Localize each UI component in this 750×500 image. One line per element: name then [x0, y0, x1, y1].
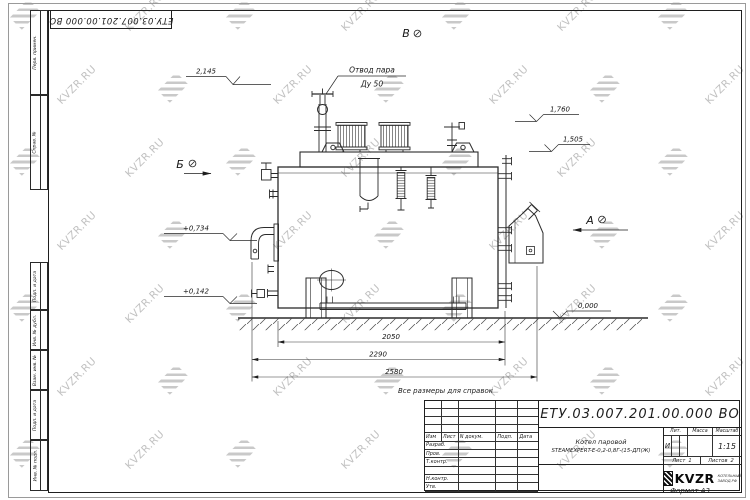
- smoke-bracket: [509, 202, 543, 263]
- view-a-label: А: [585, 214, 594, 227]
- elevation-marks: [164, 77, 611, 319]
- supports-and-drain: [306, 269, 472, 319]
- elevation-0142-text: +0,142: [183, 288, 209, 296]
- dim-2580-text: 2580: [385, 368, 403, 376]
- callout-line1: Отвод пара: [349, 66, 395, 75]
- safety-valves: [336, 123, 410, 153]
- callout-line2: Ду 50: [360, 80, 383, 89]
- left-fittings: [251, 163, 279, 298]
- view-b-label: Б: [176, 158, 184, 171]
- dim-2050-text: 2050: [382, 333, 400, 341]
- view-v-label: В: [402, 27, 410, 40]
- elevation-2145-text: 2,145: [196, 68, 217, 76]
- dim-2290-text: 2290: [369, 351, 387, 359]
- drawing-sheet: KVZR.RUKVZR.RUKVZR.RUKVZR.RUKVZR.RUKVZR.…: [0, 0, 750, 500]
- elevation-1760-text: 1,760: [550, 106, 571, 114]
- boiler-body: [278, 143, 498, 308]
- elevation-1505-text: 1,505: [563, 136, 584, 144]
- ground-line: [238, 318, 648, 330]
- steam-outlet-pipe: [312, 89, 333, 153]
- elevation-0000-text: 0,000: [578, 302, 599, 310]
- drawing-svg: 2050 2290 2580 2,145 1,760 1,505 +0,734 …: [0, 0, 750, 500]
- elevation-0734-text: +0,734: [183, 225, 209, 233]
